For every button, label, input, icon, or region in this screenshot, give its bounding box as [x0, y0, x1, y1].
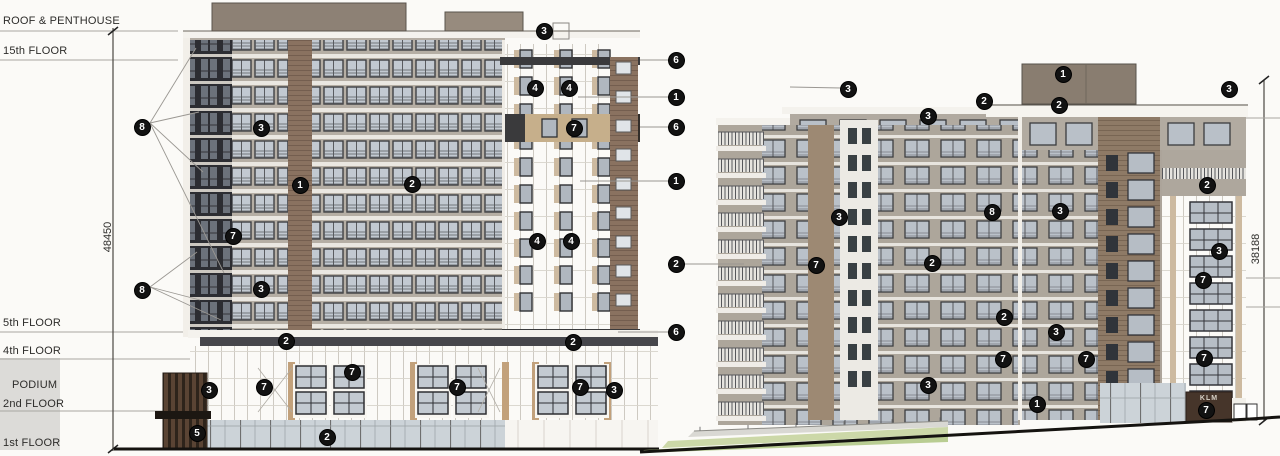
callout-2: 2 — [319, 429, 336, 446]
callout-3: 3 — [920, 377, 937, 394]
callout-3: 3 — [840, 81, 857, 98]
callout-7: 7 — [566, 120, 583, 137]
callout-2: 2 — [996, 309, 1013, 326]
callout-3: 3 — [1221, 81, 1238, 98]
callout-2: 2 — [668, 256, 685, 273]
callout-4: 4 — [529, 233, 546, 250]
callout-7: 7 — [225, 228, 242, 245]
callout-3: 3 — [920, 108, 937, 125]
callout-7: 7 — [256, 379, 273, 396]
callout-2: 2 — [924, 255, 941, 272]
callout-7: 7 — [449, 379, 466, 396]
callout-2: 2 — [976, 93, 993, 110]
callout-2: 2 — [278, 333, 295, 350]
callout-3: 3 — [1052, 203, 1069, 220]
callout-6: 6 — [668, 324, 685, 341]
callout-3: 3 — [831, 209, 848, 226]
floor-label-roof-penthouse: ROOF & PENTHOUSE — [3, 15, 120, 27]
callout-2: 2 — [565, 334, 582, 351]
callout-4: 4 — [561, 80, 578, 97]
callout-7: 7 — [572, 379, 589, 396]
callout-1: 1 — [292, 177, 309, 194]
callout-2: 2 — [404, 176, 421, 193]
callout-1: 1 — [668, 89, 685, 106]
callout-2: 2 — [1051, 97, 1068, 114]
floor-label-4th: 4th FLOOR — [3, 345, 61, 357]
callout-8: 8 — [134, 119, 151, 136]
callout-6: 6 — [668, 52, 685, 69]
callout-3: 3 — [1211, 243, 1228, 260]
entry-sign: KLM — [1188, 395, 1230, 402]
callout-7: 7 — [1078, 351, 1095, 368]
callout-7: 7 — [995, 351, 1012, 368]
callout-5: 5 — [189, 425, 206, 442]
callout-7: 7 — [1195, 272, 1212, 289]
callout-3: 3 — [253, 120, 270, 137]
floor-label-5th: 5th FLOOR — [3, 317, 61, 329]
callout-1: 1 — [1055, 66, 1072, 83]
elevation-drawing: ROOF & PENTHOUSE 15th FLOOR 5th FLOOR 4t… — [0, 0, 1280, 456]
floor-label-podium: PODIUM — [12, 379, 57, 391]
callout-7: 7 — [344, 364, 361, 381]
callout-2: 2 — [1199, 177, 1216, 194]
callout-3: 3 — [1048, 324, 1065, 341]
elevation-svg — [0, 0, 1280, 456]
floor-label-15th: 15th FLOOR — [3, 45, 67, 57]
callout-8: 8 — [984, 204, 1001, 221]
callout-1: 1 — [668, 173, 685, 190]
callout-3: 3 — [253, 281, 270, 298]
callout-7: 7 — [1198, 402, 1215, 419]
callout-3: 3 — [201, 382, 218, 399]
callout-6: 6 — [668, 119, 685, 136]
dimension-height-left: 48450 — [102, 207, 114, 267]
callout-3: 3 — [536, 23, 553, 40]
callout-4: 4 — [527, 80, 544, 97]
floor-label-2nd: 2nd FLOOR — [3, 398, 64, 410]
callout-7: 7 — [1196, 350, 1213, 367]
callout-3: 3 — [606, 382, 623, 399]
dimension-height-right: 38188 — [1250, 219, 1262, 279]
callout-8: 8 — [134, 282, 151, 299]
callout-7: 7 — [808, 257, 825, 274]
callout-4: 4 — [563, 233, 580, 250]
callout-1: 1 — [1029, 396, 1046, 413]
floor-label-1st: 1st FLOOR — [3, 437, 60, 449]
